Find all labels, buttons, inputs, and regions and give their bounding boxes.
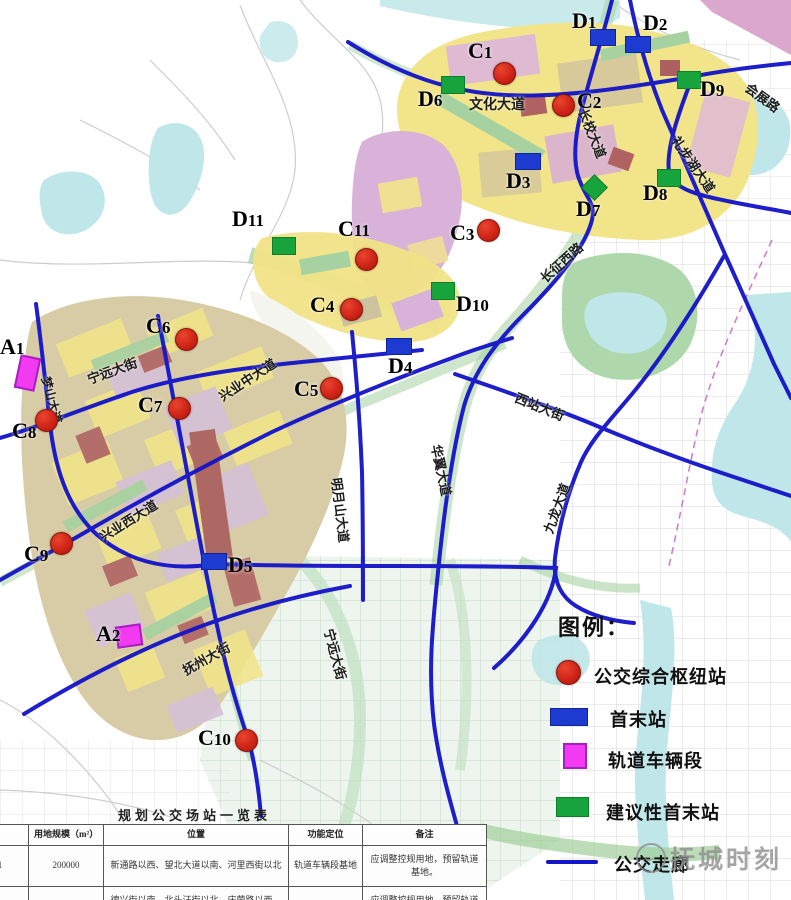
marker-number: 9 <box>716 81 725 100</box>
hub-label-c3: C3 <box>450 222 474 244</box>
legend-title: 图例： <box>558 610 630 642</box>
plan-table-cell: 轨道车辆段基地 <box>289 887 363 900</box>
plan-table-cell: 284000 <box>29 887 104 900</box>
marker-number: 11 <box>354 221 370 240</box>
marker-number: 3 <box>522 173 531 192</box>
marker-letter: D <box>700 76 716 101</box>
marker-letter: C <box>12 418 28 443</box>
marker-letter: A <box>0 334 16 359</box>
marker-number: 6 <box>434 91 443 110</box>
hub-marker-c7 <box>168 397 191 420</box>
legend-terminal-icon <box>550 708 588 726</box>
marker-number: 8 <box>659 185 668 204</box>
hub-label-c10: C10 <box>198 727 231 749</box>
marker-letter: C <box>146 313 162 338</box>
watermark-logo-icon <box>636 843 666 873</box>
suggested-marker-d6 <box>441 76 465 94</box>
marker-number: 2 <box>112 626 121 645</box>
hub-marker-c9 <box>50 532 73 555</box>
terminal-label-d1: D1 <box>572 10 596 32</box>
marker-letter: D <box>418 86 434 111</box>
suggested-label-d6: D6 <box>418 88 442 110</box>
marker-number: 6 <box>162 318 171 337</box>
hub-label-c2: C2 <box>577 90 601 112</box>
legend-label-depot: 轨道车辆段 <box>608 747 703 773</box>
hub-marker-c8 <box>35 409 58 432</box>
plan-table-header-cell <box>0 825 29 846</box>
hub-label-c6: C6 <box>146 315 170 337</box>
marker-letter: C <box>577 88 593 113</box>
marker-number: 5 <box>310 381 319 400</box>
marker-number: 5 <box>244 557 253 576</box>
marker-letter: C <box>468 38 484 63</box>
legend-label-terminal: 首末站 <box>610 706 667 732</box>
suggested-label-d9: D9 <box>700 78 724 100</box>
planning-map: 图例： 规划公交场站一览表 用地规模（m²）位置功能定位备注 基地1200000… <box>0 0 791 900</box>
marker-letter: C <box>338 216 354 241</box>
suggested-label-d10: D10 <box>456 293 489 315</box>
marker-letter: C <box>294 376 310 401</box>
hub-marker-c6 <box>175 328 198 351</box>
hub-label-c9: C9 <box>24 543 48 565</box>
depot-label-a1: A1 <box>0 336 24 358</box>
watermark: 抚城时刻 <box>636 840 782 876</box>
marker-letter: D <box>506 168 522 193</box>
hub-label-c7: C7 <box>138 394 162 416</box>
hub-marker-c5 <box>320 377 343 400</box>
marker-number: 3 <box>466 225 475 244</box>
legend-route-line-icon <box>546 860 598 864</box>
terminal-label-d5: D5 <box>228 554 252 576</box>
marker-letter: D <box>643 10 659 35</box>
marker-number: 1 <box>16 339 25 358</box>
legend-hub-icon <box>556 660 581 685</box>
marker-letter: D <box>572 8 588 33</box>
plan-table-header-row: 用地规模（m²）位置功能定位备注 <box>0 825 487 846</box>
suggested-label-d8: D8 <box>643 182 667 204</box>
terminal-marker-d5 <box>201 553 227 570</box>
marker-number: 11 <box>248 211 264 230</box>
marker-number: 4 <box>326 297 335 316</box>
marker-number: 7 <box>154 397 163 416</box>
plan-table-cell: 应调整控规用地，预留轨道基地。 <box>363 887 487 900</box>
legend-label-suggested: 建议性首末站 <box>606 799 720 825</box>
marker-number: 4 <box>404 358 413 377</box>
marker-number: 8 <box>28 423 37 442</box>
hub-label-c11: C11 <box>338 218 370 240</box>
suggested-marker-d9 <box>677 71 701 89</box>
plan-table-cell: 轨道车辆段基地 <box>289 846 363 887</box>
terminal-label-d4: D4 <box>388 355 412 377</box>
marker-letter: A <box>96 621 112 646</box>
legend-label-hub: 公交综合枢纽站 <box>594 663 727 689</box>
marker-number: 2 <box>593 93 602 112</box>
marker-number: 10 <box>472 296 489 315</box>
hub-label-c5: C5 <box>294 378 318 400</box>
depot-label-a2: A2 <box>96 623 120 645</box>
road-label-wenhua-dadao: 文化大道 <box>469 94 525 114</box>
marker-letter: C <box>138 392 154 417</box>
suggested-marker-d10 <box>431 282 455 300</box>
legend-depot-icon <box>563 743 587 769</box>
hub-marker-c2 <box>552 94 575 117</box>
suggested-label-d11: D11 <box>232 208 264 230</box>
marker-letter: D <box>228 552 244 577</box>
marker-number: 9 <box>40 546 49 565</box>
terminal-label-d2: D2 <box>643 12 667 34</box>
plan-table-cell: 基地2 <box>0 887 29 900</box>
legend-suggested-icon <box>556 797 589 817</box>
marker-number: 2 <box>659 15 668 34</box>
hub-label-c8: C8 <box>12 420 36 442</box>
marker-letter: C <box>24 541 40 566</box>
plan-table-header-cell: 用地规模（m²） <box>29 825 104 846</box>
plan-table-title: 规划公交场站一览表 <box>118 805 271 824</box>
marker-letter: C <box>198 725 214 750</box>
marker-letter: D <box>232 206 248 231</box>
plan-table-cell: 德兴街以南、北头汪街以北、庆荣路以西、兴 <box>104 887 289 900</box>
marker-letter: C <box>450 220 466 245</box>
plan-table-cell: 新通路以西、望北大道以南、河里西街以北 <box>104 846 289 887</box>
marker-letter: D <box>576 196 592 221</box>
suggested-marker-d11 <box>272 237 296 255</box>
hub-label-c4: C4 <box>310 294 334 316</box>
marker-number: 1 <box>588 13 597 32</box>
plan-table-cell: 应调整控规用地，预留轨道基地。 <box>363 846 487 887</box>
hub-marker-c3 <box>477 219 500 242</box>
plan-table-row-1: 基地1200000新通路以西、望北大道以南、河里西街以北轨道车辆段基地应调整控规… <box>0 846 487 887</box>
plan-table-cell: 基地1 <box>0 846 29 887</box>
plan-table-row-2: 基地2284000德兴街以南、北头汪街以北、庆荣路以西、兴轨道车辆段基地应调整控… <box>0 887 487 900</box>
marker-letter: C <box>310 292 326 317</box>
marker-number: 7 <box>592 201 601 220</box>
plan-table-header-cell: 备注 <box>363 825 487 846</box>
hub-marker-c11 <box>355 248 378 271</box>
marker-letter: D <box>643 180 659 205</box>
hub-marker-c4 <box>340 298 363 321</box>
hub-marker-c1 <box>493 62 516 85</box>
marker-letter: D <box>456 291 472 316</box>
hub-label-c1: C1 <box>468 40 492 62</box>
terminal-label-d3: D3 <box>506 170 530 192</box>
watermark-text: 抚城时刻 <box>670 840 782 876</box>
plan-table-cell: 200000 <box>29 846 104 887</box>
terminal-marker-d2 <box>625 36 651 53</box>
plan-table-header-cell: 功能定位 <box>289 825 363 846</box>
suggested-label-d7: D7 <box>576 198 600 220</box>
plan-table: 用地规模（m²）位置功能定位备注 基地1200000新通路以西、望北大道以南、河… <box>0 824 487 900</box>
marker-letter: D <box>388 353 404 378</box>
marker-number: 1 <box>484 43 493 62</box>
hub-marker-c10 <box>235 729 258 752</box>
marker-number: 10 <box>214 730 231 749</box>
plan-table-header-cell: 位置 <box>104 825 289 846</box>
